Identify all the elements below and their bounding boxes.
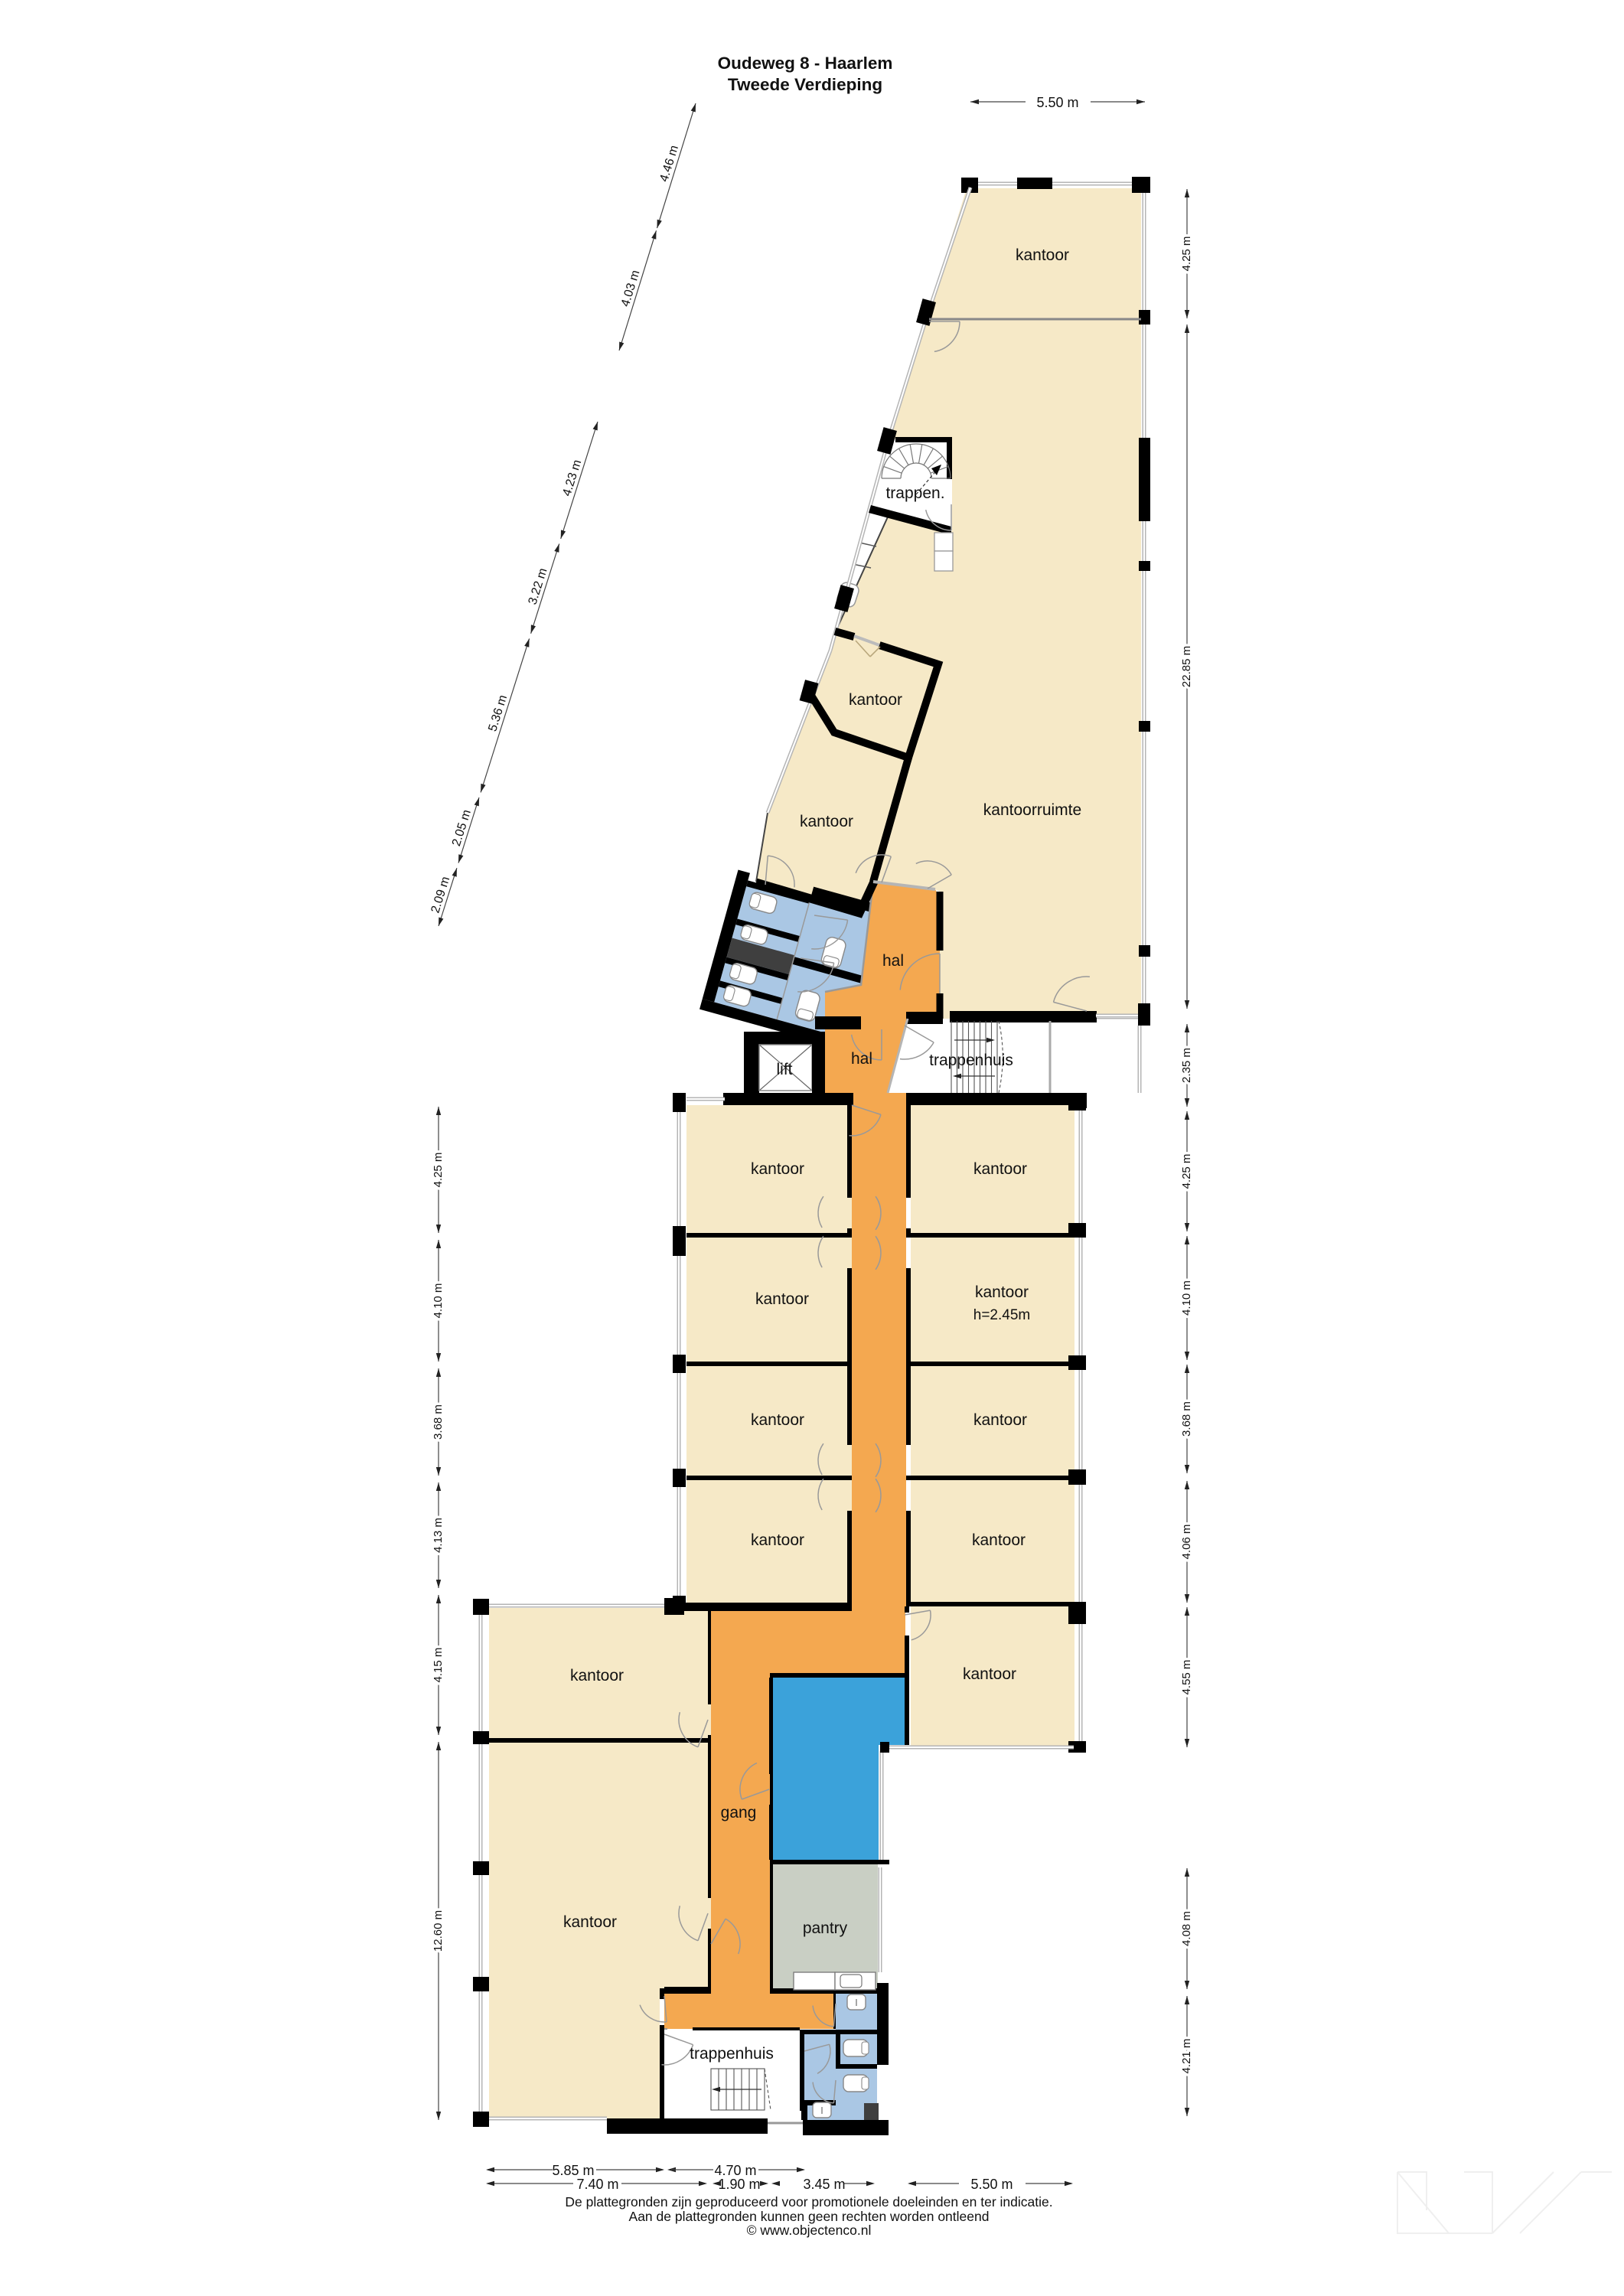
svg-text:2.35 m: 2.35 m xyxy=(1180,1048,1193,1083)
svg-text:gang: gang xyxy=(721,1804,757,1821)
svg-text:4.10 m: 4.10 m xyxy=(432,1283,445,1319)
svg-text:4.10 m: 4.10 m xyxy=(1180,1280,1193,1316)
svg-text:kantoor: kantoor xyxy=(751,1411,804,1429)
svg-text:kantoor: kantoor xyxy=(755,1290,809,1308)
svg-text:4.25 m: 4.25 m xyxy=(432,1153,445,1188)
svg-text:De plattegronden zijn geproduc: De plattegronden zijn geproduceerd voor … xyxy=(565,2194,1052,2210)
svg-text:4.13 m: 4.13 m xyxy=(432,1518,445,1553)
svg-text:1.90 m: 1.90 m xyxy=(718,2177,760,2192)
svg-text:kantoor: kantoor xyxy=(973,1411,1027,1429)
svg-text:5.85 m: 5.85 m xyxy=(552,2163,594,2178)
svg-text:trappen.: trappen. xyxy=(885,484,944,502)
svg-text:trappenhuis: trappenhuis xyxy=(690,2045,774,2063)
svg-text:lift: lift xyxy=(777,1061,793,1078)
svg-text:4.21 m: 4.21 m xyxy=(1180,2039,1193,2074)
svg-text:kantoor: kantoor xyxy=(751,1160,804,1178)
svg-text:h=2.45m: h=2.45m xyxy=(973,1307,1030,1323)
svg-text:kantoor: kantoor xyxy=(963,1665,1016,1683)
svg-text:Aan de plattegronden kunnen ge: Aan de plattegronden kunnen geen rechten… xyxy=(629,2209,990,2224)
svg-text:trappenhuis: trappenhuis xyxy=(929,1052,1013,1069)
svg-text:3.68 m: 3.68 m xyxy=(1180,1401,1193,1437)
svg-text:3.45 m: 3.45 m xyxy=(803,2177,845,2192)
svg-text:pantry: pantry xyxy=(803,1919,848,1937)
svg-text:5.50 m: 5.50 m xyxy=(970,2177,1013,2192)
svg-text:kantoor: kantoor xyxy=(1016,246,1069,264)
svg-text:Oudeweg 8 - Haarlem: Oudeweg 8 - Haarlem xyxy=(718,54,893,73)
svg-text:hal: hal xyxy=(882,952,904,970)
svg-text:3.68 m: 3.68 m xyxy=(432,1404,445,1440)
svg-text:kantoor: kantoor xyxy=(973,1160,1027,1178)
svg-text:4.25 m: 4.25 m xyxy=(1180,236,1193,272)
svg-text:12.60 m: 12.60 m xyxy=(432,1910,445,1952)
svg-text:4.25 m: 4.25 m xyxy=(1180,1154,1193,1189)
svg-text:4.08 m: 4.08 m xyxy=(1180,1911,1193,1946)
svg-text:4.15 m: 4.15 m xyxy=(432,1648,445,1683)
svg-text:22.85 m: 22.85 m xyxy=(1180,646,1193,687)
svg-text:kantoor: kantoor xyxy=(563,1913,617,1931)
svg-text:5.50 m: 5.50 m xyxy=(1036,95,1078,110)
svg-text:© www.objectenco.nl: © www.objectenco.nl xyxy=(747,2223,872,2238)
svg-text:kantoor: kantoor xyxy=(570,1667,624,1684)
svg-text:4.06 m: 4.06 m xyxy=(1180,1525,1193,1560)
svg-text:hal: hal xyxy=(851,1050,872,1068)
svg-text:kantoor: kantoor xyxy=(849,691,902,709)
svg-text:7.40 m: 7.40 m xyxy=(576,2177,618,2192)
svg-text:kantoor: kantoor xyxy=(751,1531,804,1549)
svg-text:4.55 m: 4.55 m xyxy=(1180,1660,1193,1695)
svg-text:Tweede Verdieping: Tweede Verdieping xyxy=(728,75,882,94)
svg-text:kantoor: kantoor xyxy=(800,813,853,830)
svg-text:kantoor: kantoor xyxy=(972,1531,1026,1549)
svg-text:4.70 m: 4.70 m xyxy=(714,2163,756,2178)
svg-text:kantoor: kantoor xyxy=(975,1283,1029,1301)
svg-text:kantoorruimte: kantoorruimte xyxy=(983,801,1081,819)
